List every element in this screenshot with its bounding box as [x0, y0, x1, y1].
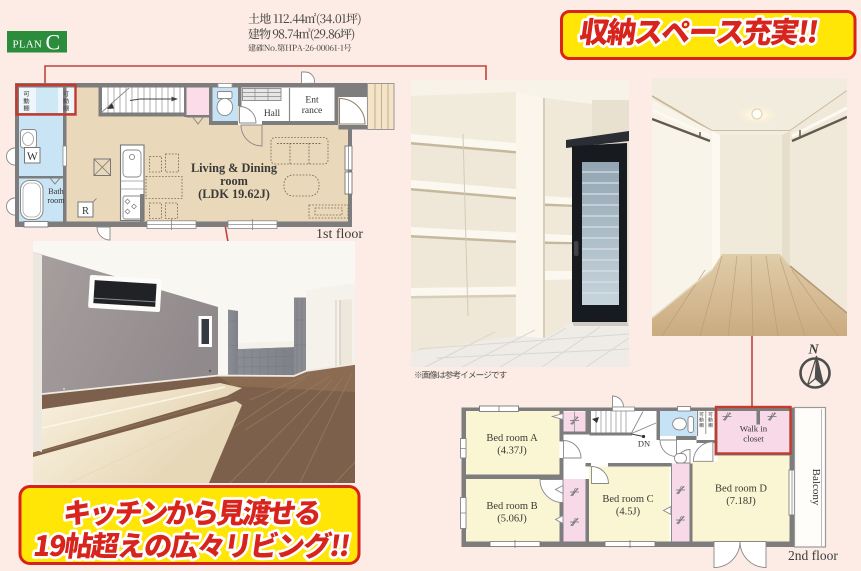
svg-text:room: room	[220, 174, 249, 188]
svg-text:(7.18J): (7.18J)	[726, 496, 756, 507]
svg-text:(4.37J): (4.37J)	[497, 446, 527, 457]
svg-text:closet: closet	[743, 434, 764, 444]
svg-text:Bed room C: Bed room C	[602, 494, 653, 505]
svg-text:Living & Dining: Living & Dining	[191, 161, 278, 175]
svg-text:Bed room B: Bed room B	[486, 501, 537, 512]
svg-text:Ent: Ent	[305, 96, 319, 106]
svg-text:2nd floor: 2nd floor	[788, 548, 838, 563]
svg-text:(LDK 19.62J): (LDK 19.62J)	[198, 187, 270, 201]
svg-text:rance: rance	[302, 106, 323, 116]
svg-text:Balcony: Balcony	[810, 469, 822, 506]
svg-text:Walk in: Walk in	[740, 424, 768, 434]
svg-text:PLAN: PLAN	[13, 39, 43, 51]
svg-text:Hall: Hall	[264, 109, 281, 119]
svg-text:C: C	[46, 30, 61, 55]
svg-text:room: room	[47, 196, 65, 205]
svg-text:Bath: Bath	[48, 187, 63, 196]
svg-text:W: W	[27, 151, 38, 163]
svg-text:Bed room A: Bed room A	[486, 433, 538, 444]
svg-text:R: R	[82, 206, 89, 217]
svg-text:1st floor: 1st floor	[316, 227, 363, 242]
svg-text:N: N	[807, 343, 819, 358]
svg-text:(4.5J): (4.5J)	[616, 507, 641, 518]
svg-text:(5.06J): (5.06J)	[497, 514, 527, 525]
svg-text:Bed room D: Bed room D	[715, 484, 767, 495]
svg-text:DN: DN	[638, 439, 650, 449]
